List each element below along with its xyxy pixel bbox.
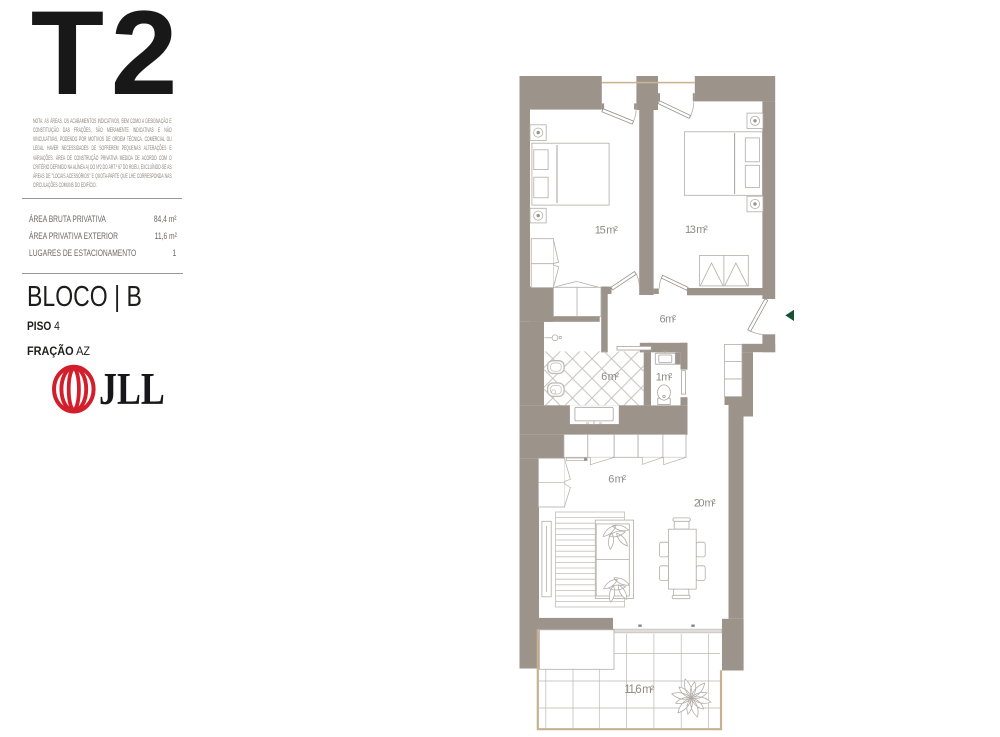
svg-text:15 m²: 15 m²	[595, 225, 619, 237]
svg-text:11,6 m²: 11,6 m²	[624, 684, 654, 696]
svg-text:6 m²: 6 m²	[601, 371, 619, 383]
svg-text:6 m²: 6 m²	[660, 314, 677, 326]
svg-text:6 m²: 6 m²	[608, 474, 626, 486]
svg-text:13 m²: 13 m²	[685, 224, 708, 236]
svg-text:1 m²: 1 m²	[656, 372, 673, 384]
svg-text:20 m²: 20 m²	[694, 497, 716, 509]
